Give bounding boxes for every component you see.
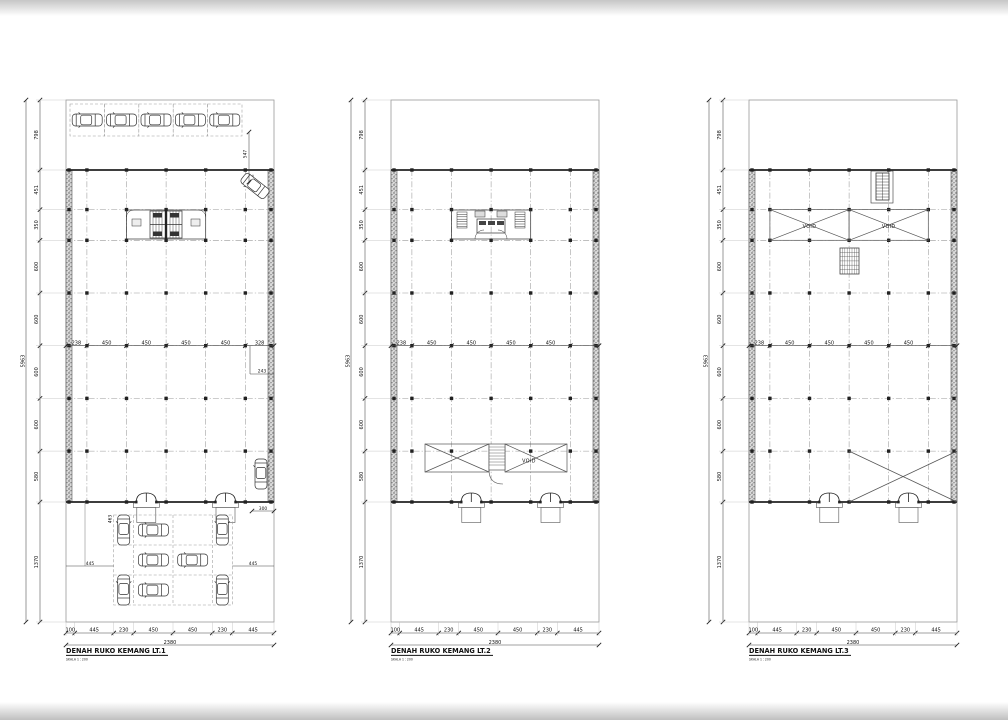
page-edge-shadow-bottom <box>0 702 1008 720</box>
entry-steps-icon <box>458 503 484 523</box>
plan-title: DENAH RUKO KEMANG LT.3 <box>749 647 849 655</box>
dimension-label: 450 <box>904 341 914 347</box>
dimension-label: 230 <box>543 628 553 634</box>
floor-plan-lt1: 547 300 463 246 <box>12 92 302 672</box>
parked-car-icon <box>215 515 230 545</box>
dimension-label: 450 <box>825 341 835 347</box>
dimension-label: 600 <box>34 262 40 272</box>
parked-car-icon <box>138 522 168 537</box>
parking-stalls-bottom <box>114 515 233 605</box>
void-label: VOID <box>522 459 536 465</box>
dimension-label: 450 <box>427 341 437 347</box>
dimension-label: 2380 <box>847 640 860 646</box>
dimension-label: 600 <box>717 315 723 325</box>
dimension-label: 600 <box>359 367 365 377</box>
parked-car-icon <box>107 112 137 127</box>
dimension-label: 238 <box>397 341 407 347</box>
parked-car-icon <box>72 112 102 127</box>
dimension-label: 1370 <box>717 556 723 569</box>
dimension-label: 230 <box>802 628 812 634</box>
dimension-label: 230 <box>119 628 129 634</box>
parked-car-icon <box>141 112 171 127</box>
dimension-label: 2380 <box>164 640 177 646</box>
dimension-label: 100 <box>66 628 76 634</box>
plan-scale: SKALA 1 : 200 <box>391 658 413 662</box>
dimension-label: 243 <box>258 369 267 375</box>
dimension-label: 450 <box>513 628 523 634</box>
dimension-label: 238 <box>755 341 765 347</box>
double-door-icon <box>214 493 236 504</box>
floor-plan-lt3: VOID VOID 798 451 350 600 600 600 600 58… <box>695 92 985 672</box>
dimension-label: 445 <box>89 628 99 634</box>
parked-car-icon <box>215 575 230 605</box>
dimension-label: 445 <box>249 561 258 567</box>
dimension-label: 100 <box>749 628 759 634</box>
double-door-icon <box>897 493 919 504</box>
parked-car-icon <box>116 515 131 545</box>
dimension-label: 600 <box>359 315 365 325</box>
dimension-label: 450 <box>785 341 795 347</box>
turning-car-icon <box>239 171 272 201</box>
dimension-label: 600 <box>34 367 40 377</box>
dimension-label: 230 <box>444 628 454 634</box>
dimension-label: 451 <box>34 185 40 195</box>
void-label: VOID <box>803 224 817 230</box>
dimension-label: 798 <box>359 130 365 140</box>
parked-car-icon <box>175 112 205 127</box>
dimension-label: 600 <box>359 262 365 272</box>
void-label: VOID <box>882 224 896 230</box>
dimension-label: 600 <box>717 367 723 377</box>
stair-room <box>871 171 893 203</box>
double-door-icon <box>539 493 561 504</box>
dimension-label: 450 <box>467 341 477 347</box>
dimension-label: 600 <box>717 262 723 272</box>
void-area <box>770 210 928 241</box>
entry-steps-icon <box>133 503 159 523</box>
plan-title: DENAH RUKO KEMANG LT.1 <box>66 647 166 655</box>
parked-car-icon <box>116 575 131 605</box>
dimension-label: 600 <box>359 420 365 430</box>
stair-icon <box>457 212 467 228</box>
void-area <box>425 444 567 484</box>
dimension-label: 230 <box>901 628 911 634</box>
dimension-label: 547 <box>243 150 249 159</box>
dimension-label: 600 <box>717 420 723 430</box>
dimension-label: 580 <box>717 472 723 482</box>
dimension-label: 350 <box>717 220 723 230</box>
dimension-label: 100 <box>391 628 401 634</box>
double-door-icon <box>460 493 482 504</box>
dimension-label: 450 <box>832 628 842 634</box>
parked-car-icon <box>253 459 268 489</box>
dimension-label: 445 <box>573 628 583 634</box>
dimension-label: 600 <box>34 315 40 325</box>
roof-hatch <box>840 248 859 274</box>
dimension-label: 230 <box>218 628 228 634</box>
dimension-label: 328 <box>255 341 265 347</box>
parked-car-icon <box>178 552 208 567</box>
dimension-label: 450 <box>221 341 231 347</box>
dimension-label: 451 <box>717 185 723 195</box>
dimension-label: 1370 <box>359 556 365 569</box>
entry-steps-icon <box>896 503 922 523</box>
double-door-icon <box>818 493 840 504</box>
dimension-label: 2380 <box>489 640 502 646</box>
floor-plan-lt2: VOID 798 451 350 600 600 600 600 580 137… <box>337 92 627 672</box>
plan-scale: SKALA 1 : 200 <box>66 658 88 662</box>
dimension-label: 5963 <box>704 355 710 368</box>
dimension-label: 450 <box>871 628 881 634</box>
dimension-label: 445 <box>772 628 782 634</box>
dimension-label: 350 <box>359 220 365 230</box>
parked-car-icon <box>138 582 168 597</box>
plan-title: DENAH RUKO KEMANG LT.2 <box>391 647 491 655</box>
dimension-label: 463 <box>108 515 114 524</box>
dimension-label: 1370 <box>34 556 40 569</box>
dimension-label: 450 <box>546 341 556 347</box>
plan-scale: SKALA 1 : 200 <box>749 658 771 662</box>
dimension-label: 445 <box>248 628 258 634</box>
stair-icon <box>515 212 525 228</box>
dimension-label: 445 <box>414 628 424 634</box>
dimension-label: 450 <box>474 628 484 634</box>
dimension-label: 450 <box>142 341 152 347</box>
dimension-label: 450 <box>506 341 516 347</box>
dimension-label: 5963 <box>21 355 27 368</box>
dimension-label: 445 <box>86 561 95 567</box>
plan-structure <box>707 98 959 647</box>
dimension-label: 450 <box>188 628 198 634</box>
entry-steps-icon <box>816 503 842 523</box>
dimension-label: 451 <box>359 185 365 195</box>
dimension-label: 600 <box>34 420 40 430</box>
dimension-label: 300 <box>259 506 268 512</box>
dimension-label: 580 <box>34 472 40 482</box>
parked-car-icon <box>210 112 240 127</box>
dimension-label: 450 <box>149 628 159 634</box>
dimension-label: 445 <box>931 628 941 634</box>
dimension-label: 350 <box>34 220 40 230</box>
parked-car-icon <box>138 552 168 567</box>
dimension-label: 798 <box>34 130 40 140</box>
dimension-label: 5963 <box>346 355 352 368</box>
dimension-label: 450 <box>102 341 112 347</box>
stair-core <box>127 208 206 241</box>
dimension-label: 450 <box>864 341 874 347</box>
dimension-label: 450 <box>181 341 191 347</box>
double-door-icon <box>135 493 157 504</box>
dimension-label: 798 <box>717 130 723 140</box>
dimension-label: 580 <box>359 472 365 482</box>
plan-structure <box>349 98 601 647</box>
entry-steps-icon <box>538 503 564 523</box>
page-edge-shadow-top <box>0 0 1008 16</box>
dimension-label: 238 <box>72 341 82 347</box>
